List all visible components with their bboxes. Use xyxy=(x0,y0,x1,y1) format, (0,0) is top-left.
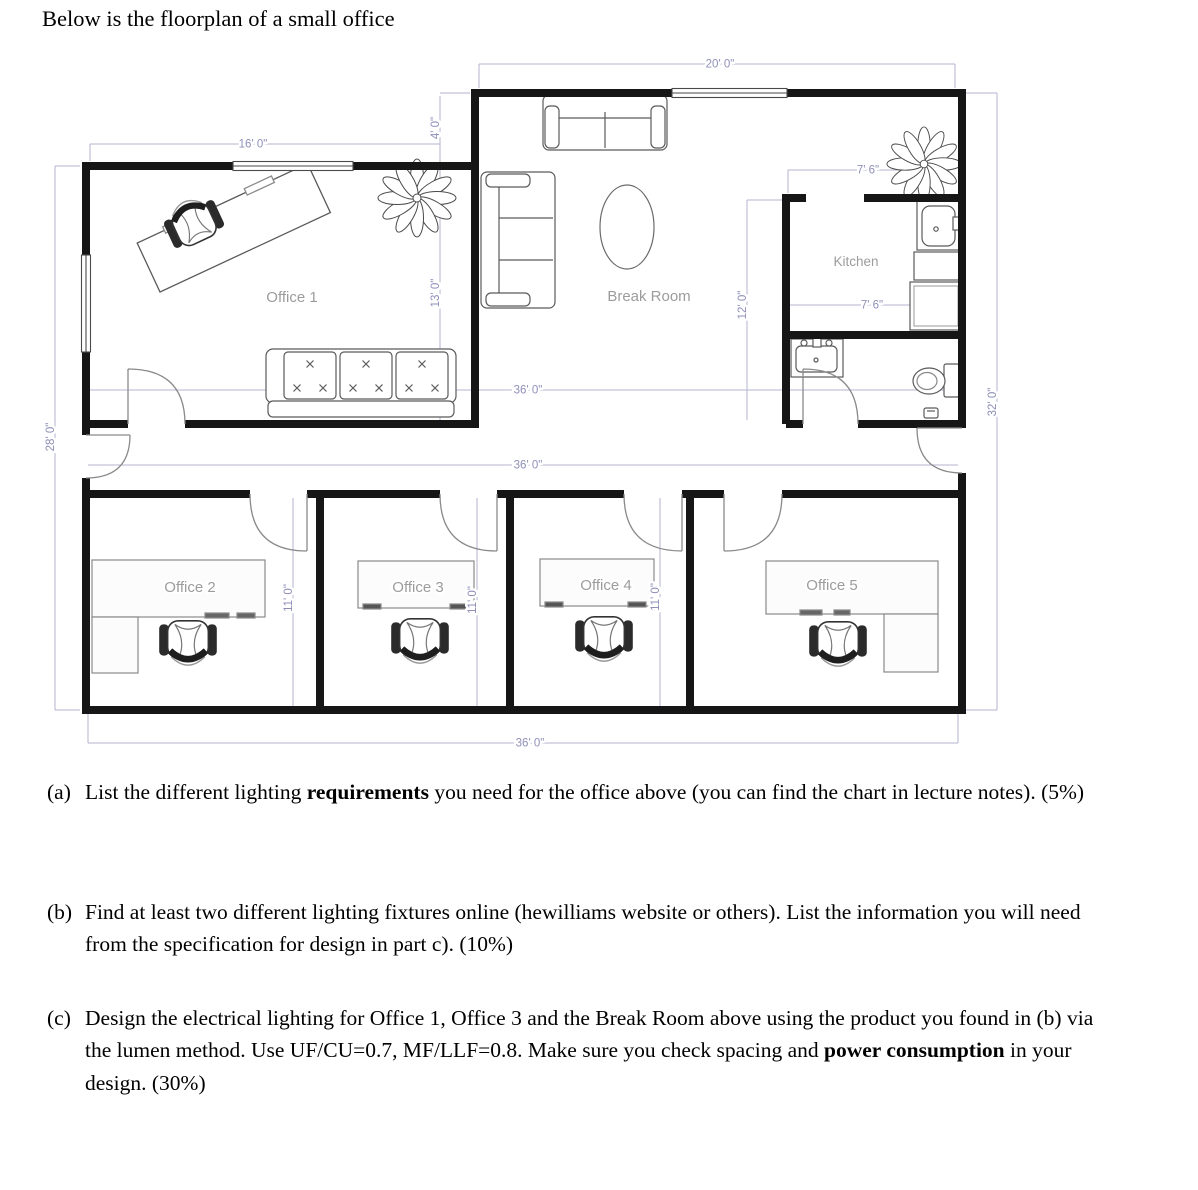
kitchen-plant-icon xyxy=(887,127,961,201)
question-a-text: List the different lighting requirements… xyxy=(85,776,1122,808)
dim-top-width: 20' 0" xyxy=(706,59,735,71)
question-c: (c) Design the electrical lighting for O… xyxy=(47,1002,1122,1099)
office5-label: Office 5 xyxy=(806,577,857,594)
breakroom-sofa-top xyxy=(543,95,667,150)
dim-corridor-width: 36' 0" xyxy=(514,460,543,472)
kitchen-counter xyxy=(910,252,962,330)
question-c-text: Design the electrical lighting for Offic… xyxy=(85,1002,1122,1099)
question-text-part-bold: power consumption xyxy=(824,1038,1005,1062)
question-c-label: (c) xyxy=(47,1002,85,1099)
dim-office3-depth: 11' 0" xyxy=(467,586,479,614)
dim-right-height: 32' 0" xyxy=(987,388,999,417)
office1-sofa xyxy=(266,349,456,417)
dim-bottom-width: 36' 0" xyxy=(516,738,545,750)
question-b-text: Find at least two different lighting fix… xyxy=(85,896,1122,961)
dim-kitchen-width-top: 7' 6" xyxy=(857,165,879,177)
dim-kitchen-width-bottom: 7' 6" xyxy=(861,300,883,312)
floorplan: Office 1 Break Room Kitchen Office 2 Off… xyxy=(0,0,1198,762)
dim-left-height: 28' 0" xyxy=(45,423,57,452)
office4-chair-icon xyxy=(575,617,633,661)
office2-label: Office 2 xyxy=(164,579,215,596)
dim-entry-recess: 4' 0" xyxy=(430,117,442,139)
breakroom-table xyxy=(600,185,654,269)
question-b: (b) Find at least two different lighting… xyxy=(47,896,1122,961)
office5-chair-icon xyxy=(809,622,867,666)
question-a-label: (a) xyxy=(47,776,85,808)
toilet xyxy=(913,364,959,397)
floorplan-drawing: Office 1 Break Room Kitchen Office 2 Off… xyxy=(0,0,1198,762)
office1-plant-icon xyxy=(378,159,456,237)
dim-office1-width: 16' 0" xyxy=(239,139,268,151)
dim-office1-depth: 13' 0" xyxy=(430,279,442,308)
office3-chair-icon xyxy=(391,619,449,663)
kitchen-sink xyxy=(917,200,962,250)
office2-chair-icon xyxy=(159,621,217,665)
question-a: (a) List the different lighting requirem… xyxy=(47,776,1122,808)
bathroom-vanity xyxy=(791,338,843,377)
office4-label: Office 4 xyxy=(580,577,631,594)
dim-upper-width: 36' 0" xyxy=(514,385,543,397)
bathroom-step xyxy=(924,408,938,418)
question-b-label: (b) xyxy=(47,896,85,961)
kitchen-label: Kitchen xyxy=(833,254,878,269)
breakroom-sofa-left xyxy=(481,172,555,308)
dim-office4-depth: 11' 0" xyxy=(650,583,662,611)
dim-kitchen-depth: 12' 0" xyxy=(737,291,749,320)
office3-label: Office 3 xyxy=(392,579,443,596)
question-text-part: Find at least two different lighting fix… xyxy=(85,900,1081,956)
question-text-part: you need for the office above (you can f… xyxy=(429,780,1084,804)
dim-office2-depth: 11' 0" xyxy=(283,584,295,612)
office1-label: Office 1 xyxy=(266,289,317,306)
question-text-part: List the different lighting xyxy=(85,780,307,804)
breakroom-label: Break Room xyxy=(607,288,690,305)
question-text-part-bold: requirements xyxy=(307,780,429,804)
